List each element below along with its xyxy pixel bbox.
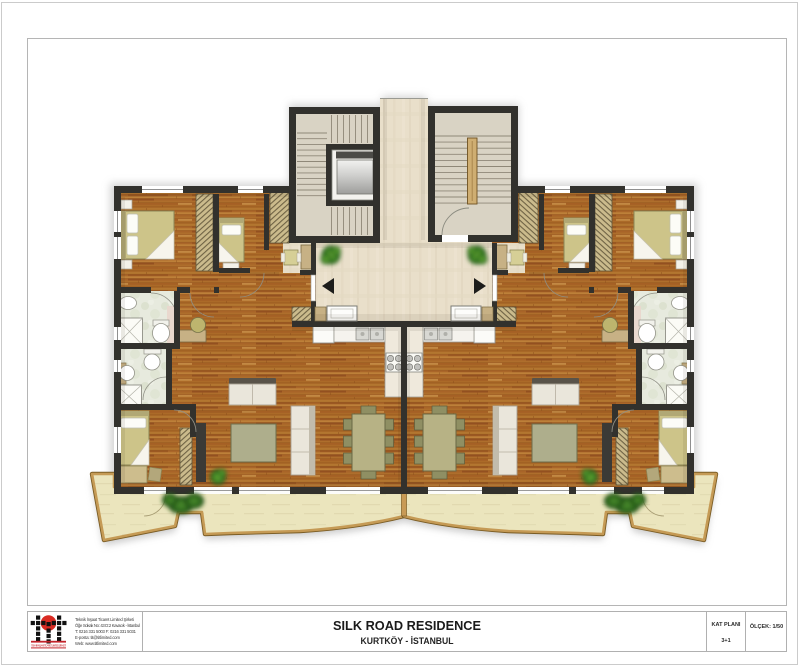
svg-text:KAT PLANI: KAT PLANI <box>712 622 741 628</box>
svg-text:Teknik İnşaat Ticaret Limited: Teknik İnşaat Ticaret Limited Şirketi <box>75 617 134 622</box>
svg-text:TEKNİK İNŞAAT TİCARET LİMİTED: TEKNİK İNŞAAT TİCARET LİMİTED ŞİRKETİ <box>31 642 66 647</box>
svg-text:Web: www.titlimited.com: Web: www.titlimited.com <box>75 641 118 646</box>
svg-text:3+1: 3+1 <box>721 638 730 644</box>
svg-text:KURTKÖY - İSTANBUL: KURTKÖY - İSTANBUL <box>361 636 454 646</box>
svg-text:E-posta: tit@titlimited.com: E-posta: tit@titlimited.com <box>75 635 121 640</box>
svg-text:T: 0216 331 5003 F: 0216 331 5: T: 0216 331 5003 F: 0216 331 5031 <box>75 629 137 634</box>
svg-text:Öğe Sokak No: 43 D:2 Kavacık -: Öğe Sokak No: 43 D:2 Kavacık - İstanbul <box>75 623 140 628</box>
svg-text:SILK ROAD RESIDENCE: SILK ROAD RESIDENCE <box>333 618 481 633</box>
svg-text:ÖLÇEK: 1/50: ÖLÇEK: 1/50 <box>750 623 783 630</box>
